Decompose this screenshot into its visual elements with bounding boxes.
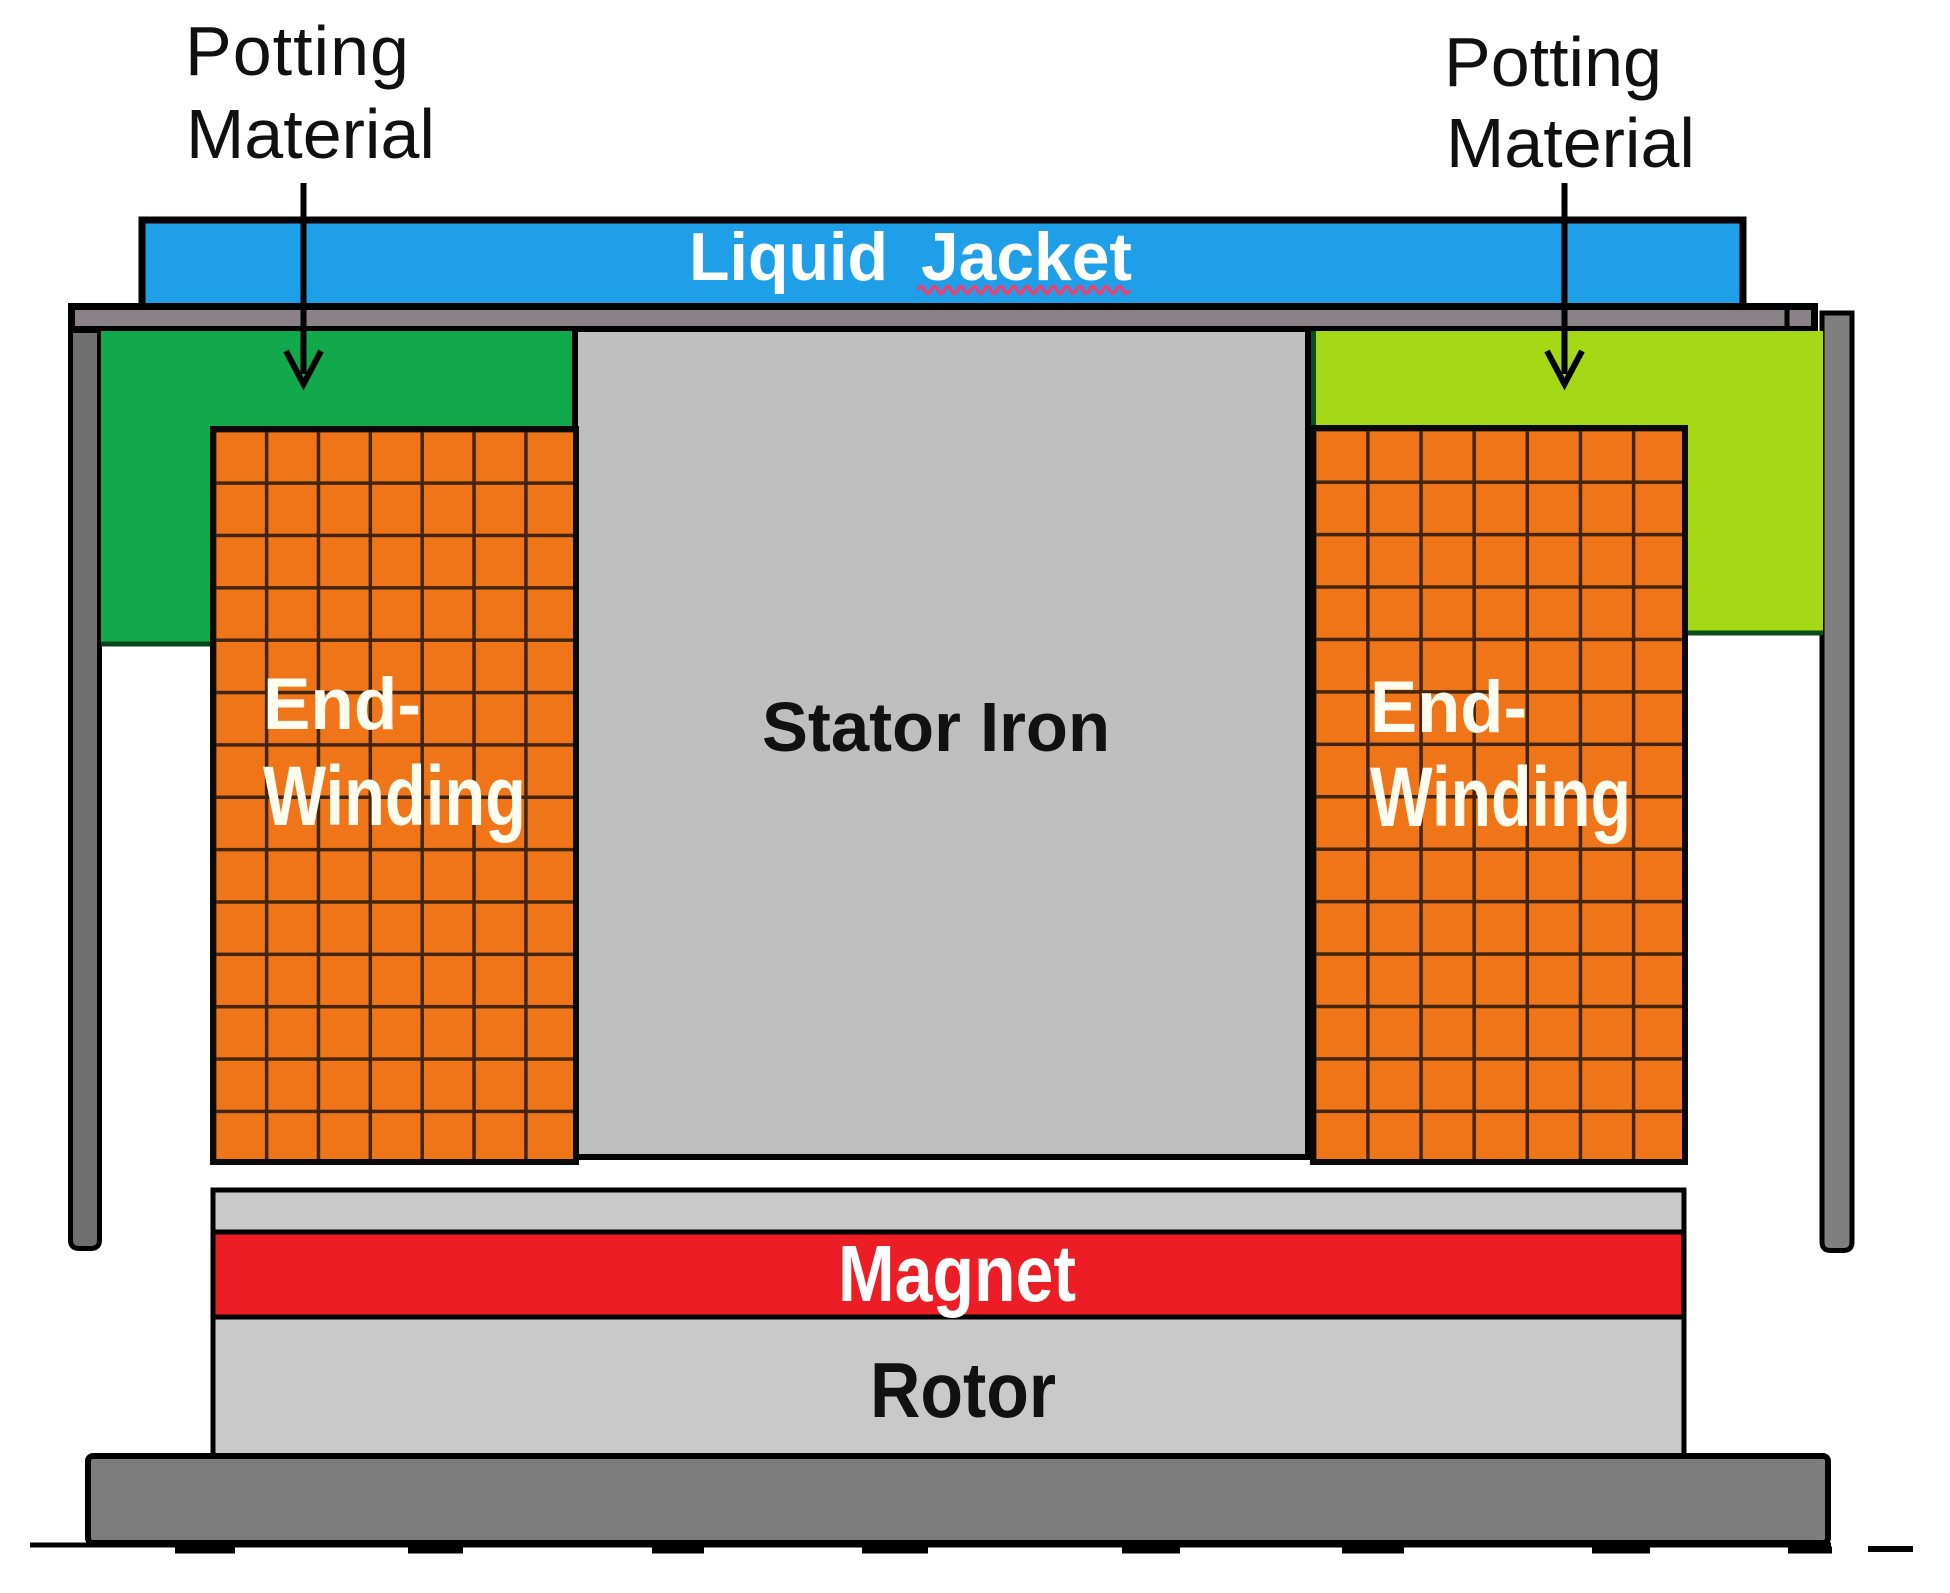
svg-text:Material: Material — [186, 95, 435, 173]
svg-text:Winding: Winding — [1370, 750, 1631, 844]
svg-text:Potting: Potting — [1444, 23, 1662, 101]
svg-text:Winding: Winding — [263, 749, 526, 843]
svg-text:Stator Iron: Stator Iron — [762, 688, 1110, 766]
svg-text:End-: End- — [263, 664, 421, 745]
svg-text:Material: Material — [1446, 104, 1695, 182]
svg-text:End-: End- — [1370, 667, 1527, 748]
svg-text:Rotor: Rotor — [870, 1346, 1056, 1434]
svg-text:Potting: Potting — [185, 12, 410, 90]
svg-text:Jacket: Jacket — [921, 219, 1132, 295]
svg-text:Liquid: Liquid — [689, 219, 888, 295]
svg-text:Magnet: Magnet — [838, 1229, 1076, 1318]
